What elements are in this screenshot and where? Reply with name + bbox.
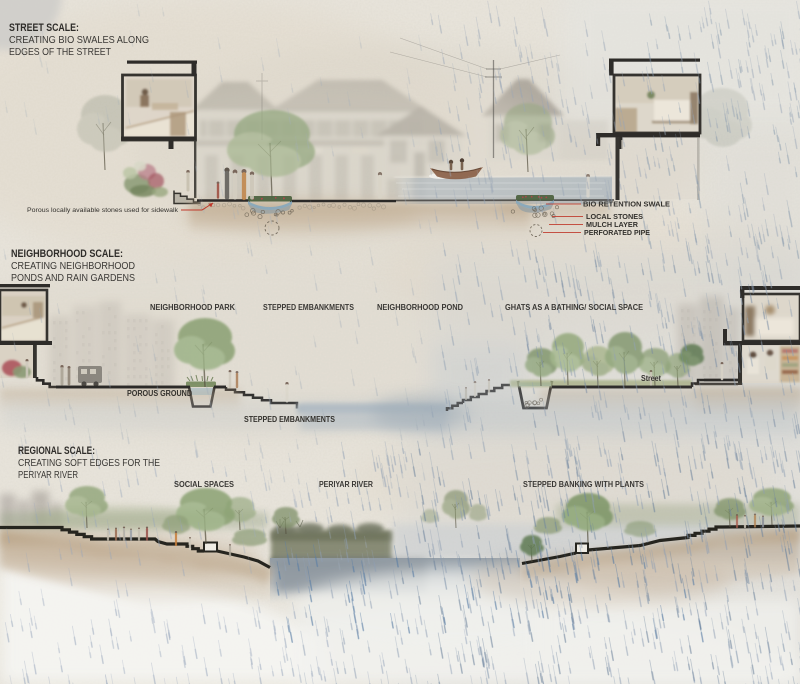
svg-text:STEPPED EMBANKMENTS: STEPPED EMBANKMENTS [244,415,336,424]
svg-text:STREET SCALE:: STREET SCALE: [9,22,79,34]
svg-text:REGIONAL SCALE:: REGIONAL SCALE: [18,445,95,457]
svg-text:STEPPED BANKING WITH PLANTS: STEPPED BANKING WITH PLANTS [523,480,645,489]
svg-text:PERIYAR RIVER: PERIYAR RIVER [18,469,78,481]
svg-text:STEPPED EMBANKMENTS: STEPPED EMBANKMENTS [263,303,355,312]
svg-text:BIO RETENTION SWALE: BIO RETENTION SWALE [583,200,670,209]
svg-text:CREATING BIO SWALES ALONG: CREATING BIO SWALES ALONG [9,34,149,46]
svg-text:NEIGHBORHOOD PARK: NEIGHBORHOOD PARK [150,303,235,312]
svg-text:Porous locally available stone: Porous locally available stones used for… [27,207,179,214]
svg-text:PERIYAR RIVER: PERIYAR RIVER [319,480,373,489]
svg-text:PONDS AND RAIN GARDENS: PONDS AND RAIN GARDENS [11,272,135,284]
svg-text:CREATING NEIGHBORHOOD: CREATING NEIGHBORHOOD [11,260,135,272]
svg-text:CREATING SOFT EDGES FOR THE: CREATING SOFT EDGES FOR THE [18,457,160,469]
svg-text:GHATS AS A BATHING/ SOCIAL SPA: GHATS AS A BATHING/ SOCIAL SPACE [505,303,644,312]
svg-text:NEIGHBORHOOD POND: NEIGHBORHOOD POND [377,303,463,312]
svg-text:NEIGHBORHOOD SCALE:: NEIGHBORHOOD SCALE: [11,248,123,260]
svg-text:PERFORATED PIPE: PERFORATED PIPE [584,228,650,237]
svg-text:EDGES OF THE STREET: EDGES OF THE STREET [9,46,111,58]
svg-text:POROUS GROUND: POROUS GROUND [127,389,192,398]
svg-text:Street: Street [641,374,661,383]
svg-text:SOCIAL SPACES: SOCIAL SPACES [174,480,235,489]
